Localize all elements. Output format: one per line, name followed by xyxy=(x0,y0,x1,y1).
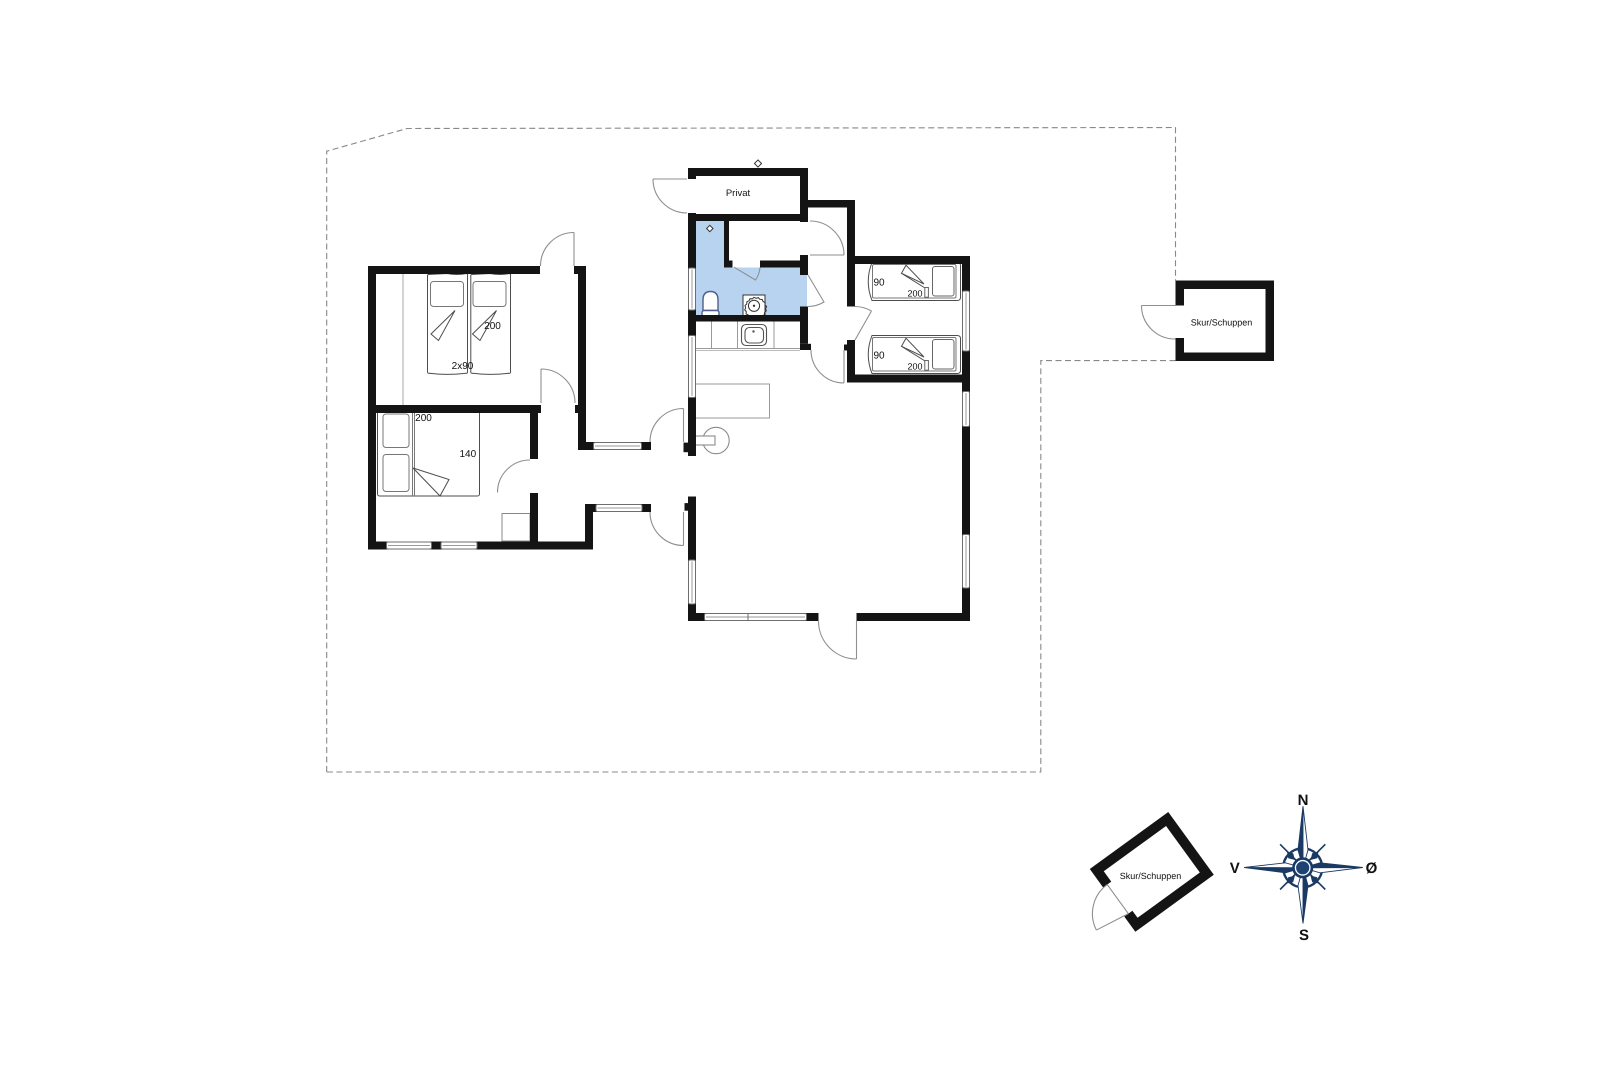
svg-text:S: S xyxy=(1299,927,1309,944)
svg-text:90: 90 xyxy=(873,351,885,362)
svg-text:200: 200 xyxy=(484,321,501,332)
svg-text:Skur/Schuppen: Skur/Schuppen xyxy=(1120,871,1182,881)
svg-text:Ø: Ø xyxy=(1366,860,1378,877)
svg-text:200: 200 xyxy=(907,289,922,299)
svg-text:Skur/Schuppen: Skur/Schuppen xyxy=(1191,318,1253,328)
svg-text:V: V xyxy=(1230,860,1240,877)
svg-text:Privat: Privat xyxy=(726,188,751,199)
svg-text:N: N xyxy=(1298,792,1309,809)
svg-text:200: 200 xyxy=(907,362,922,372)
svg-text:90: 90 xyxy=(873,278,885,289)
svg-text:140: 140 xyxy=(459,449,476,460)
svg-text:200: 200 xyxy=(415,413,432,424)
svg-text:2x90: 2x90 xyxy=(452,361,474,372)
